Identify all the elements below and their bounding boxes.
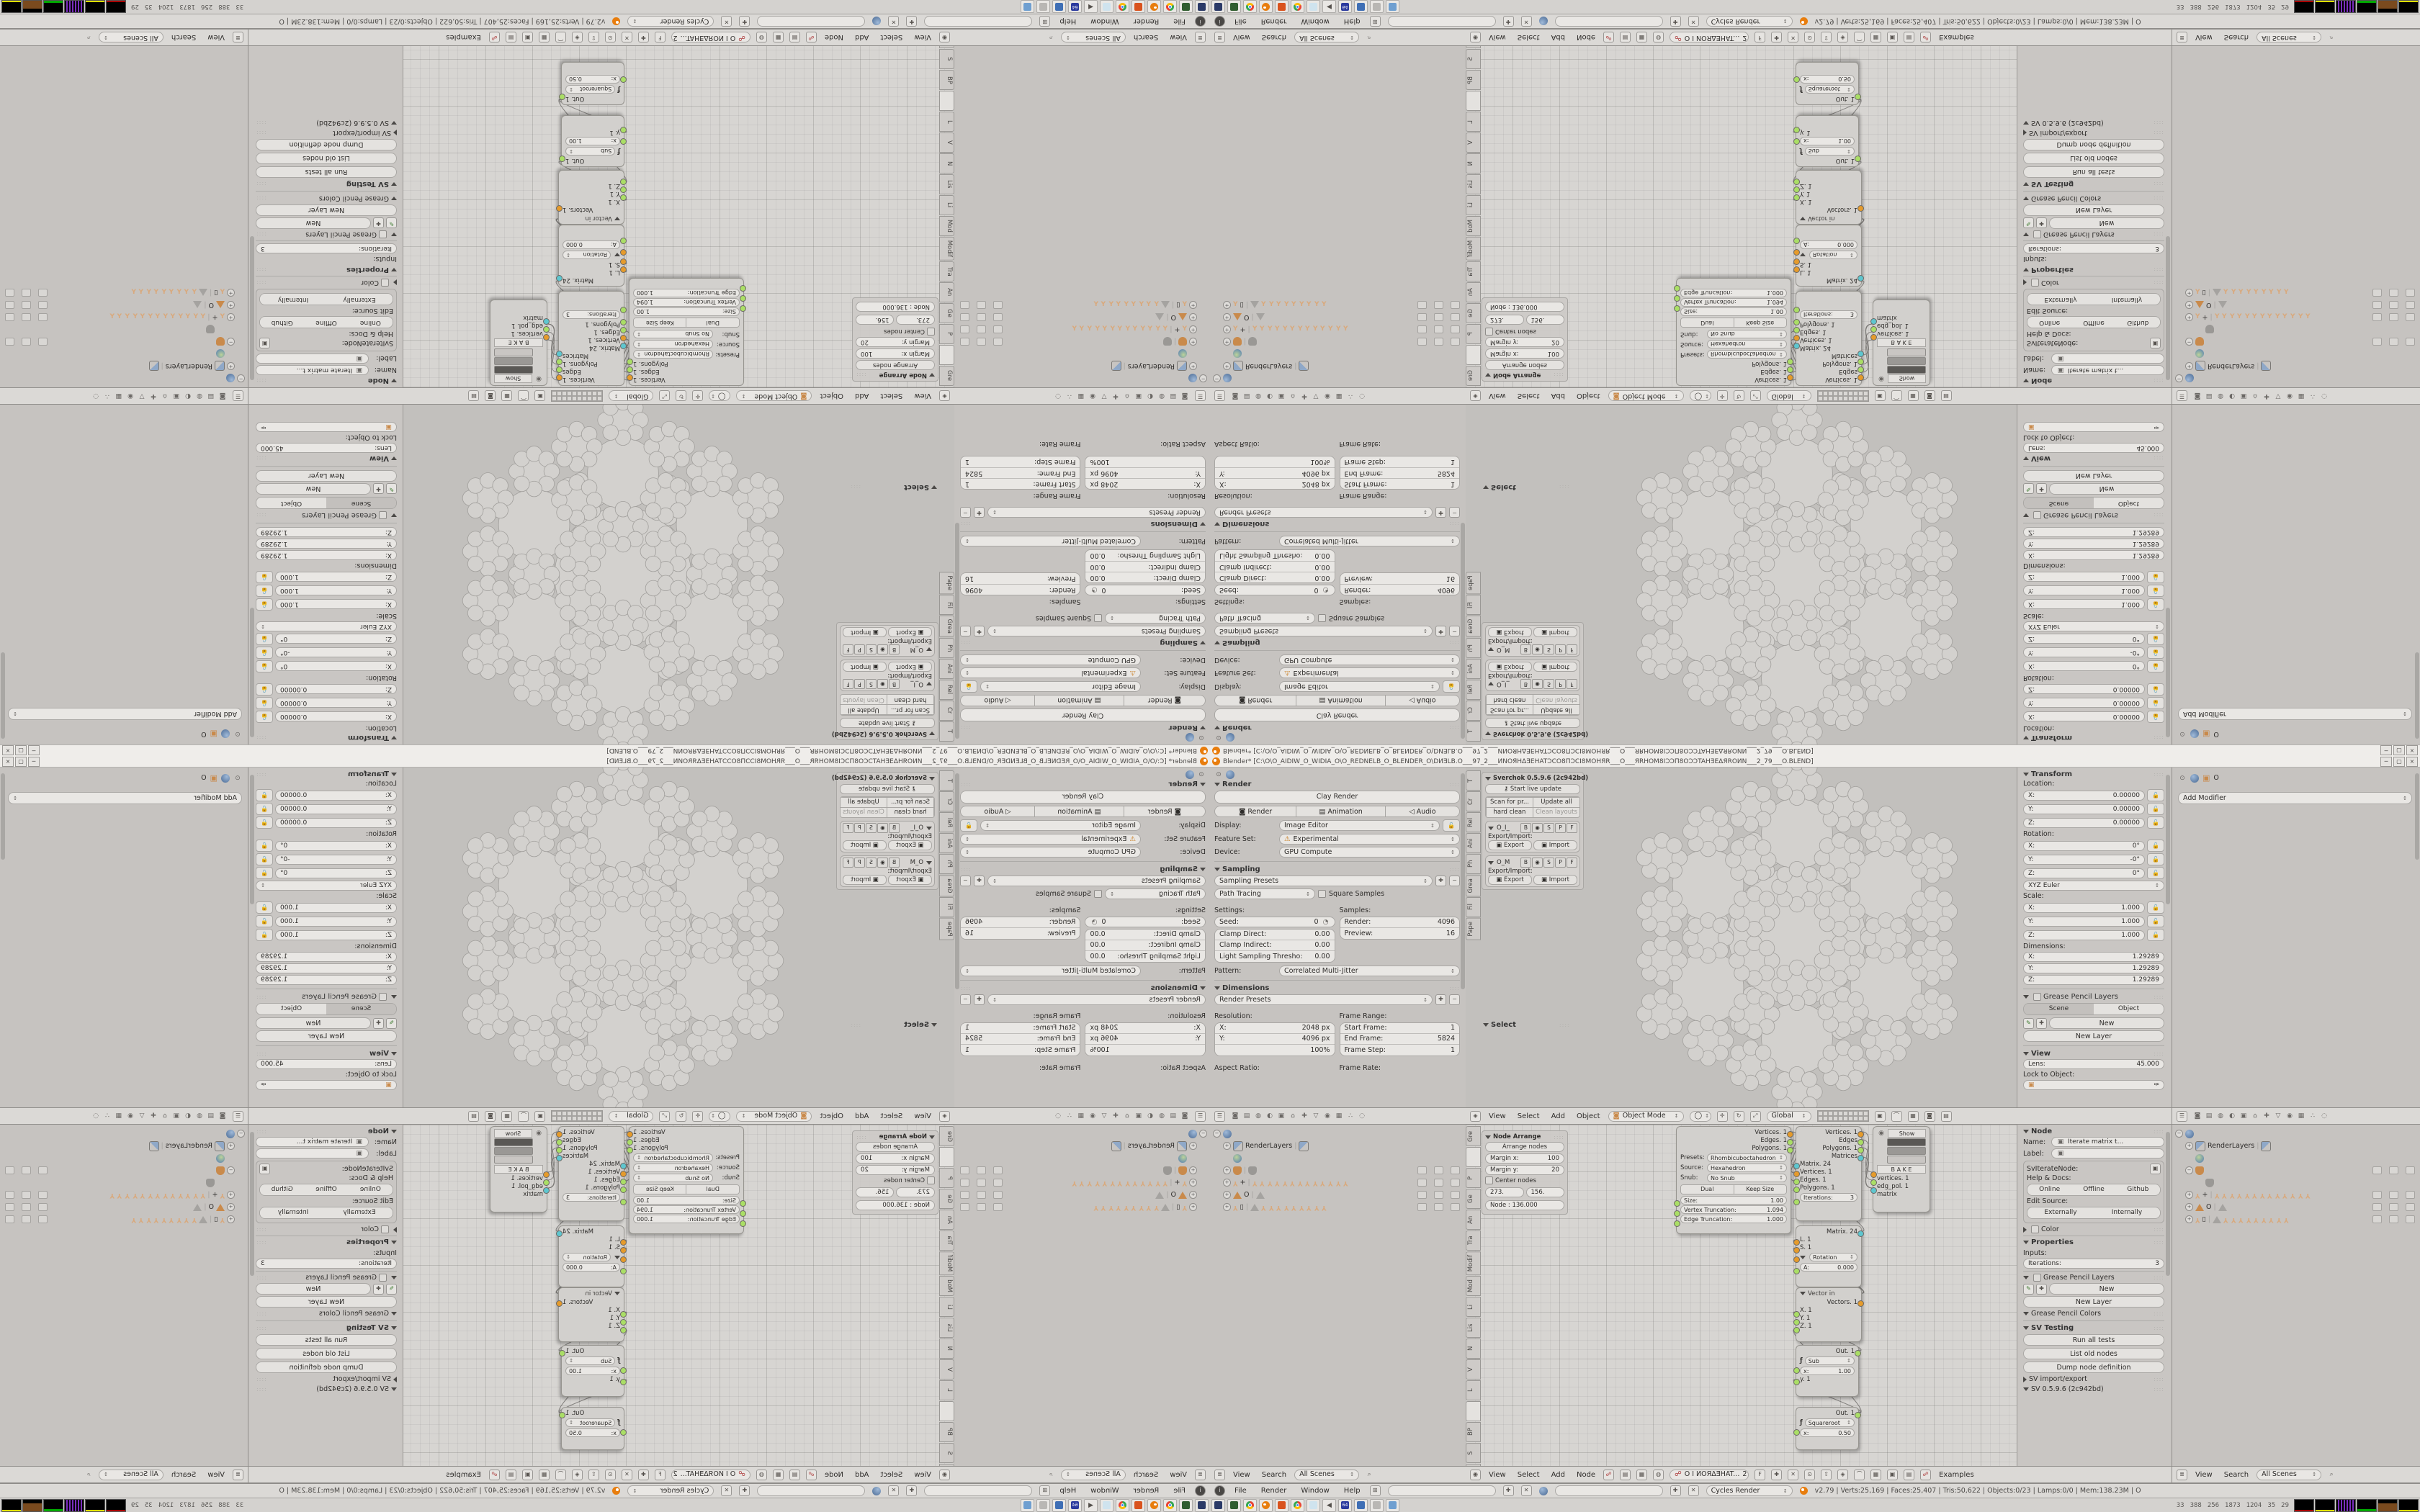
location-z-field[interactable]: Z:0.00000 xyxy=(2023,818,2145,828)
lock-icon[interactable]: 🔓 xyxy=(2147,697,2164,709)
unlink-button[interactable]: ✕ xyxy=(622,32,632,43)
outliner-row-renderlayers[interactable]: +RenderLayers| xyxy=(957,360,1207,372)
render-panel-title[interactable]: Render xyxy=(1169,724,1198,732)
display-dropdown[interactable]: Image Editor↕ xyxy=(980,820,1141,831)
screen-layout-field[interactable] xyxy=(1388,1485,1496,1496)
physics-tab-icon[interactable]: ◌ xyxy=(1358,1112,1366,1120)
clean-layouts-button[interactable]: Clean layouts xyxy=(1533,807,1579,817)
dim-x-field[interactable]: X:1.29289 xyxy=(2023,550,2164,560)
lock-icon[interactable]: 🔓 xyxy=(256,683,273,696)
window-app-icon[interactable] xyxy=(1386,1,1399,14)
properties-header[interactable]: ☰ ◙▤◍◐▣⌂✚▽◉▦∴◌ xyxy=(2172,1107,2420,1125)
node-arrange-title[interactable]: Node Arrange xyxy=(1493,1133,1541,1140)
editor-type-button[interactable]: ≣ xyxy=(1195,32,1206,43)
node-tree-selector[interactable]: ☍O I ИOЯΔƎHAT...2 xyxy=(1670,1470,1749,1480)
size-field[interactable]: Size:1.00 xyxy=(633,1196,740,1205)
list-old-nodes-button[interactable]: List old nodes xyxy=(256,1348,397,1359)
physics-tab-icon[interactable]: ◌ xyxy=(1054,392,1062,400)
layer-grid[interactable] xyxy=(551,390,603,402)
gp-new-button[interactable]: New xyxy=(256,1017,371,1029)
screen-layout-icon[interactable]: ⊞ xyxy=(1370,1485,1381,1496)
clay-render-field[interactable]: Clay Render xyxy=(1214,791,1460,804)
keep-size-button[interactable]: Keep Size xyxy=(1734,1185,1787,1194)
lock-icon[interactable]: 🔓 xyxy=(256,803,273,815)
rotation-dropdown[interactable]: Rotation↕ xyxy=(563,1253,611,1261)
scan-for-props-button[interactable]: Scan for pr... xyxy=(887,797,934,807)
properties-header[interactable]: ☰ ◙▤◍◐▣⌂✚▽◉▦∴◌ xyxy=(0,1107,248,1125)
hard-clean-button[interactable]: hard clean xyxy=(1486,807,1533,817)
frame-step-field[interactable]: Frame Step:1 xyxy=(961,1045,1080,1056)
run-all-tests-button[interactable]: Run all tests xyxy=(2023,166,2164,178)
object-breadcrumb-icon[interactable]: ▣ xyxy=(2202,729,2210,739)
light-sampling-threshold-field[interactable]: Light Sampling Thresho:0.00 xyxy=(1215,550,1335,561)
chrome-icon[interactable] xyxy=(1243,1499,1257,1512)
shading-dropdown[interactable]: ◯↕ xyxy=(1690,391,1711,402)
object-tab-icon[interactable]: ▣ xyxy=(1277,392,1286,400)
internally-button[interactable]: Internally xyxy=(2094,1207,2160,1218)
snap-magnet-icon[interactable]: ⌒ xyxy=(518,1111,529,1122)
snap-magnet-icon[interactable]: ⌒ xyxy=(1891,391,1902,402)
start-live-update-button[interactable]: ⚷ Start live update xyxy=(1485,718,1580,728)
paste-icon[interactable]: ▤ xyxy=(506,32,516,43)
math-op-dropdown[interactable]: Sub↕ xyxy=(1805,147,1855,156)
flag-b[interactable]: B xyxy=(889,823,900,833)
snap-magnet-icon[interactable]: ⌒ xyxy=(555,32,566,43)
examples-menu[interactable]: Examples xyxy=(444,1471,483,1479)
scene-delete-button[interactable]: ✕ xyxy=(1688,16,1699,27)
outliner-row-scene[interactable]: − xyxy=(2175,372,2418,384)
resolution-percentage-field[interactable]: 100% xyxy=(1215,1045,1335,1056)
gp-checkbox[interactable] xyxy=(2033,511,2041,519)
gp-new-button[interactable]: New xyxy=(2049,1283,2164,1295)
add-icon[interactable]: ✚ xyxy=(2036,218,2047,229)
copy-icon[interactable]: ▣ xyxy=(259,338,270,348)
outliner-row-mesh[interactable]: +O| xyxy=(2,299,245,311)
x-field[interactable]: x:0.50 xyxy=(1800,75,1855,84)
integrator-dropdown[interactable]: Path Tracing↕ xyxy=(1214,888,1315,899)
material-tab-icon[interactable]: ◉ xyxy=(1088,392,1097,400)
outliner-row-bones2[interactable]: +Y▯| YYYYYYYYY xyxy=(2,287,245,299)
sverchok-tree-icon[interactable]: ☍ xyxy=(806,32,817,43)
scene-breadcrumb-icon[interactable] xyxy=(2190,774,2199,783)
preview-samples-field[interactable]: Preview:16 xyxy=(1340,573,1460,584)
feature-set-dropdown[interactable]: ⚠Experimental↕ xyxy=(960,834,1141,845)
math-op-dropdown[interactable]: Squareroot↕ xyxy=(1805,85,1855,94)
manipulator-scale-icon[interactable]: ⤢ xyxy=(659,1111,670,1122)
frame-step-field[interactable]: Frame Step:1 xyxy=(1340,1045,1460,1056)
gp-object-tab[interactable]: Object xyxy=(256,498,326,508)
node-editor-header[interactable]: ◉ ViewSelectAddNode ☍ ▤ ▦ ◍ ☍O I ИOЯΔƎHA… xyxy=(1466,29,2172,46)
outliner-row-scene[interactable]: − xyxy=(957,1128,1207,1140)
lock-icon[interactable]: 🔓 xyxy=(256,633,273,645)
viewport-header[interactable]: ◈ ViewSelectAddObject ◙Object Mode↕ ◯↕ ✛… xyxy=(248,387,954,405)
y-value-field[interactable]: 156. xyxy=(1526,315,1565,325)
scene-tab-icon[interactable]: ◍ xyxy=(1254,1112,1263,1120)
render-ogl-icon[interactable]: ◙ xyxy=(485,1111,496,1122)
world-tab-icon[interactable]: ◐ xyxy=(1265,392,1274,400)
scale-z-field[interactable]: Z:1.000 xyxy=(275,572,397,582)
lock-icon[interactable]: ▣ xyxy=(1875,391,1886,402)
outliner-header[interactable]: ≣ ViewSearch All Scenes↕ ⌕ xyxy=(1210,1466,1466,1483)
close-button[interactable]: × xyxy=(2406,746,2418,756)
pattern-dropdown[interactable]: Correlated Multi-Jitter↕ xyxy=(960,966,1141,976)
volume-icon[interactable]: ◀ xyxy=(1322,1499,1336,1512)
material-tab-icon[interactable]: ◉ xyxy=(1323,392,1332,400)
offline-button[interactable]: Offline xyxy=(2071,317,2115,328)
node-generator[interactable]: Vertices. 1 Edges. 1 Polygons. 1 Presets… xyxy=(629,1126,744,1234)
edge-color-swatch[interactable] xyxy=(494,357,533,365)
edge-truncation-field[interactable]: Edge Truncation:1.000 xyxy=(1680,1215,1787,1223)
clay-render-field[interactable]: Clay Render xyxy=(960,708,1206,721)
eye-icon[interactable]: ◉ xyxy=(877,858,888,868)
select-panel[interactable]: Select:::: xyxy=(1483,1021,1570,1029)
end-frame-field[interactable]: End Frame:5824 xyxy=(961,467,1080,478)
display-mode-dropdown[interactable]: All Scenes↕ xyxy=(1294,1470,1359,1480)
scrollbar[interactable] xyxy=(2166,608,2170,737)
texture-tab-icon[interactable]: ▦ xyxy=(1077,392,1085,400)
name-field[interactable]: ▣Iterate matrix t... xyxy=(2051,365,2164,375)
data-tab-icon[interactable]: ▽ xyxy=(2274,1112,2282,1120)
margin-y-field[interactable]: Margin y:20 xyxy=(856,337,935,347)
outliner-row-world[interactable] xyxy=(957,348,1207,360)
search-icon[interactable]: ⌕ xyxy=(84,1470,93,1479)
eye-icon[interactable]: ◉ xyxy=(1532,823,1543,833)
scale-y-field[interactable]: Y:1.000 xyxy=(275,586,397,596)
audio-button[interactable]: ◁ Audio xyxy=(960,695,1034,706)
manipulator-rotate-icon[interactable]: ↻ xyxy=(676,391,686,402)
rotation-x-field[interactable]: X:0° xyxy=(2023,662,2145,672)
select-panel[interactable]: Select:::: xyxy=(850,1021,937,1029)
margin-y-field[interactable]: Margin y:20 xyxy=(856,1165,935,1175)
snap-magnet-icon[interactable]: ⌒ xyxy=(518,391,529,402)
chrome-icon[interactable] xyxy=(1243,1,1257,14)
info-editor[interactable]: i FileRenderWindowHelp ⊞ ✚✕ ✚✕ Cycles Re… xyxy=(0,1483,1210,1498)
image-viewer-icon[interactable] xyxy=(1354,1499,1368,1512)
viewport-header[interactable]: ◈ ViewSelectAddObject ◙Object Mode↕ ◯↕ ✛… xyxy=(1466,1107,2172,1125)
edge-color-swatch[interactable] xyxy=(1887,357,1926,365)
outliner-row-bones[interactable]: +Y+| YYYYYYYYYYYYY xyxy=(957,1176,1207,1189)
render-tab-icon[interactable]: ◙ xyxy=(1231,1112,1240,1120)
node-panel-title[interactable]: Node xyxy=(2031,377,2052,384)
constraints-tab-icon[interactable]: ⌂ xyxy=(2251,1112,2259,1120)
pencil-icon[interactable]: ✎ xyxy=(386,1018,397,1029)
face-color-swatch[interactable] xyxy=(494,1156,533,1164)
editor-type-button[interactable]: ☰ xyxy=(1214,1111,1225,1122)
scrollbar[interactable] xyxy=(955,523,959,739)
scene-delete-button[interactable]: ✕ xyxy=(721,1485,732,1496)
render-tab-icon[interactable]: ◙ xyxy=(1180,1112,1189,1120)
render-tab-icon[interactable]: ◙ xyxy=(2193,1112,2202,1120)
display-settings-icon[interactable] xyxy=(1195,1,1209,14)
snap-mode-dropdown[interactable]: ▦ xyxy=(1870,32,1881,43)
dim-y-field[interactable]: Y:1.29289 xyxy=(256,963,397,973)
iterations-field[interactable]: Iterations:3 xyxy=(2023,1259,2164,1269)
lock-icon[interactable]: 🔓 xyxy=(256,647,273,659)
snap-icon[interactable]: ◈ xyxy=(1837,32,1848,43)
sv-testing-title[interactable]: SV Testing xyxy=(2031,180,2074,188)
search-icon[interactable]: ⌕ xyxy=(84,33,93,42)
scrollbar[interactable] xyxy=(1,773,5,860)
group-name[interactable]: O_I_ xyxy=(900,824,923,832)
github-button[interactable]: Github xyxy=(2116,1184,2160,1195)
texture-tab-icon[interactable]: ▦ xyxy=(1077,1112,1085,1120)
restrict-render-icon[interactable] xyxy=(1451,1166,1460,1174)
editor-type-button[interactable]: ≣ xyxy=(1195,1470,1206,1480)
render-button[interactable]: ◙ Render xyxy=(1124,806,1206,817)
physics-tab-icon[interactable]: ◌ xyxy=(91,1112,100,1120)
panel-collapse-arrow[interactable] xyxy=(1214,783,1220,786)
scene-field[interactable] xyxy=(1555,1485,1663,1496)
texture-icon[interactable]: ▦ xyxy=(773,32,784,43)
scrollbar[interactable] xyxy=(250,1132,254,1276)
sverchok-panel-title[interactable]: Sverchok 0.5.9.6 (2c942bd) xyxy=(1493,730,1588,737)
bake-button[interactable]: B A K E xyxy=(494,338,543,347)
layout-add-button[interactable]: ✚ xyxy=(1503,16,1514,27)
gp-new-button[interactable]: New xyxy=(256,483,371,495)
lock-icon[interactable]: 🔓 xyxy=(2147,585,2164,597)
render-engine-dropdown[interactable]: Cycles Render↕ xyxy=(627,16,714,27)
color-checkbox[interactable] xyxy=(381,1225,389,1233)
export-button[interactable]: ▣ Export xyxy=(1488,840,1532,850)
outliner-row-world[interactable] xyxy=(1213,348,1463,360)
node-vector-in[interactable]: Vector in Vectors. 1 X. 1 Y. 1 Z. 1 xyxy=(558,1287,624,1342)
iterations-field[interactable]: Iterations:3 xyxy=(1800,310,1857,319)
add-modifier-dropdown[interactable]: Add Modifier↕ xyxy=(8,792,242,804)
show-toggle[interactable]: Show xyxy=(494,1129,532,1138)
margin-y-field[interactable]: Margin y:20 xyxy=(1485,1165,1564,1175)
physics-tab-icon[interactable]: ◌ xyxy=(91,392,100,400)
constraints-tab-icon[interactable]: ⌂ xyxy=(1289,392,1297,400)
rotation-order-dropdown[interactable]: XYZ Euler↕ xyxy=(256,621,397,631)
image-viewer-icon[interactable] xyxy=(1354,1,1368,14)
node-editor[interactable]: Vertices. 1 Edges. 1 Polygons. 1 Presets… xyxy=(1466,1125,2172,1483)
search-icon[interactable]: ⌕ xyxy=(2327,1470,2336,1479)
constraints-tab-icon[interactable]: ⌂ xyxy=(2251,392,2259,400)
location-y-field[interactable]: Y:0.00000 xyxy=(2023,698,2145,708)
label-field[interactable]: ▣ xyxy=(2051,1148,2164,1158)
snap-mode-dropdown[interactable]: ▦ xyxy=(539,32,550,43)
sv-import-export-title[interactable]: SV import/export xyxy=(2029,1375,2087,1383)
eye-icon[interactable]: ◉ xyxy=(877,823,888,833)
spiral-app-icon[interactable] xyxy=(1131,1,1145,14)
gp-scene-tab[interactable]: Scene xyxy=(2024,1004,2094,1014)
center-nodes-checkbox[interactable] xyxy=(927,1176,935,1184)
snap-icon[interactable]: ◈ xyxy=(572,1470,583,1480)
snap-magnet-icon[interactable]: ⌒ xyxy=(1891,1111,1902,1122)
preset-add-button[interactable]: ✚ xyxy=(974,507,985,518)
texture-tab-icon[interactable]: ▦ xyxy=(1335,392,1343,400)
snub-dropdown[interactable]: No Snub↕ xyxy=(1707,1174,1787,1182)
restrict-view-icon[interactable] xyxy=(993,338,1003,346)
lock-icon[interactable]: 🔓 xyxy=(2147,647,2164,659)
outliner-row-world[interactable] xyxy=(2,1152,245,1164)
world-tab-icon[interactable]: ◐ xyxy=(2228,1112,2236,1120)
gp-object-tab[interactable]: Object xyxy=(2094,498,2164,508)
device-dropdown[interactable]: GPU Compute↕ xyxy=(1279,654,1460,665)
object-tab-icon[interactable]: ▣ xyxy=(2239,1112,2248,1120)
frame-step-field[interactable]: Frame Step:1 xyxy=(1340,456,1460,467)
physics-tab-icon[interactable]: ◌ xyxy=(2320,392,2329,400)
render-button[interactable]: ◙ Render xyxy=(1214,695,1296,706)
import-button[interactable]: ▣ Import xyxy=(1533,840,1577,850)
sv-testing-title[interactable]: SV Testing xyxy=(2031,1324,2074,1332)
volume-icon[interactable]: ◀ xyxy=(1084,1,1098,14)
render-tab-icon[interactable]: ◙ xyxy=(218,1112,227,1120)
mode-dropdown[interactable]: ◙Object Mode↕ xyxy=(736,391,812,402)
edge-color-swatch[interactable] xyxy=(1887,1147,1926,1155)
editor-type-button[interactable]: ≣ xyxy=(233,32,243,43)
margin-x-field[interactable]: Margin x:100 xyxy=(856,1153,935,1164)
paste-icon[interactable]: ▤ xyxy=(506,1470,516,1480)
scene-tab-icon[interactable]: ◍ xyxy=(1157,392,1166,400)
externally-button[interactable]: Externally xyxy=(2027,1207,2094,1218)
rotation-dropdown[interactable]: Rotation↕ xyxy=(1809,251,1857,259)
snub-dropdown[interactable]: No Snub↕ xyxy=(633,330,713,338)
material-tab-icon[interactable]: ◉ xyxy=(2285,1112,2294,1120)
rotation-x-field[interactable]: X:0° xyxy=(275,662,397,672)
view-panel-title[interactable]: View xyxy=(2031,454,2051,462)
preset-add-button[interactable]: ✚ xyxy=(974,994,985,1005)
manipulator-scale-icon[interactable]: ⤢ xyxy=(1750,391,1761,402)
gp-checkbox[interactable] xyxy=(379,1274,387,1282)
color-panel-title[interactable]: Color xyxy=(361,279,379,287)
run-all-tests-button[interactable]: Run all tests xyxy=(256,166,397,178)
node-tree-selector[interactable]: ☍O I ИOЯΔƎHAT...2 xyxy=(671,32,750,43)
scrollbar[interactable] xyxy=(2166,236,2170,380)
properties-header[interactable]: ☰ ◙▤◍◐▣⌂✚▽◉▦∴◌ xyxy=(0,387,248,405)
node-count-field[interactable]: Node : 136.000 xyxy=(856,1200,935,1210)
scrollbar[interactable] xyxy=(250,775,254,904)
math-op-dropdown[interactable]: Squareroot↕ xyxy=(565,1418,615,1427)
material-tab-icon[interactable]: ◉ xyxy=(1088,1112,1097,1120)
scene-tab-icon[interactable]: ◍ xyxy=(195,392,204,400)
run-all-tests-button[interactable]: Run all tests xyxy=(2023,1334,2164,1346)
x-field[interactable]: x:0.50 xyxy=(1800,1428,1855,1437)
import-button[interactable]: ▣ Import xyxy=(843,662,887,672)
render-layers-tab-icon[interactable]: ▤ xyxy=(207,1112,215,1120)
render-engine-dropdown[interactable]: Cycles Render↕ xyxy=(1706,16,1793,27)
sampling-panel-title[interactable]: Sampling xyxy=(1222,639,1260,647)
start-live-update-button[interactable]: ⚷ Start live update xyxy=(840,718,935,728)
snap-element-dropdown[interactable]: ▦ xyxy=(1908,391,1919,402)
node-editor-header[interactable]: ◉ ViewSelectAddNode ☍ ▤ ▦ ◍ ☍O I ИOЯΔƎHA… xyxy=(248,1466,954,1483)
clean-layouts-button[interactable]: Clean layouts xyxy=(841,807,887,817)
lock-icon[interactable]: ▣ xyxy=(1875,1111,1886,1122)
scene-add-button[interactable]: ✚ xyxy=(739,16,750,27)
scale-x-field[interactable]: X:1.000 xyxy=(275,903,397,913)
object-tab-icon[interactable]: ▣ xyxy=(1134,1112,1143,1120)
particles-tab-icon[interactable]: ∴ xyxy=(2308,392,2317,400)
screen-layout-field[interactable] xyxy=(924,1485,1032,1496)
gp-checkbox[interactable] xyxy=(379,230,387,238)
outliner-row-armature[interactable]: +| xyxy=(1213,1164,1463,1176)
window-app-icon[interactable] xyxy=(1386,1499,1399,1512)
scale-y-field[interactable]: Y:1.000 xyxy=(2023,586,2145,596)
scale-z-field[interactable]: Z:1.000 xyxy=(2023,930,2145,940)
dim-z-field[interactable]: Z:1.29289 xyxy=(2023,975,2164,985)
save-64-icon[interactable]: 64 xyxy=(1068,1,1082,14)
node-editor-header[interactable]: ◉ ViewSelectAddNode ☍ ▤ ▦ ◍ ☍O I ИOЯΔƎHA… xyxy=(248,29,954,46)
world-tab-icon[interactable]: ◐ xyxy=(184,1112,192,1120)
online-button[interactable]: Online xyxy=(2027,1184,2071,1195)
gp-layers-title[interactable]: Grease Pencil Layers xyxy=(2043,511,2118,519)
scene-tab-icon[interactable]: ◍ xyxy=(2216,1112,2225,1120)
restrict-select-icon[interactable] xyxy=(1434,338,1443,346)
flag-b[interactable]: B xyxy=(1520,679,1531,689)
display-dropdown[interactable]: Image Editor↕ xyxy=(1279,820,1440,831)
clay-render-field[interactable]: Clay Render xyxy=(960,791,1206,804)
node-math-sqrt[interactable]: Out. 1 ƒSquareroot↕ x:0.50 xyxy=(561,1407,624,1450)
lock-icon[interactable]: 🔓 xyxy=(960,680,977,693)
light-sampling-threshold-field[interactable]: Light Sampling Thresho:0.00 xyxy=(1086,550,1206,561)
outliner-header[interactable]: ≣ ViewSearch All Scenes↕ ⌕ xyxy=(0,29,248,46)
outliner-header[interactable]: ≣ ViewSearch All Scenes↕ ⌕ xyxy=(2172,29,2420,46)
scrollbar[interactable] xyxy=(250,608,254,737)
lock-icon[interactable]: 🔓 xyxy=(2147,867,2164,879)
render-ogl-anim-icon[interactable]: ▤ xyxy=(468,1111,479,1122)
gp-new-button[interactable]: New xyxy=(256,217,371,229)
sampling-presets-dropdown[interactable]: Sampling Presets↕ xyxy=(1214,626,1433,636)
name-field[interactable]: ▣Iterate matrix t... xyxy=(256,365,369,375)
render-samples-field[interactable]: Render:4096 xyxy=(961,584,1080,595)
dual-button[interactable]: Dual xyxy=(1681,1185,1734,1194)
dual-button[interactable]: Dual xyxy=(687,318,740,327)
scanner-icon[interactable] xyxy=(1179,1499,1193,1512)
scene-field[interactable] xyxy=(757,1485,865,1496)
layout-add-button[interactable]: ✚ xyxy=(906,1485,917,1496)
notepad-icon[interactable] xyxy=(1100,1499,1113,1512)
render-presets-dropdown[interactable]: Render Presets↕ xyxy=(987,994,1206,1005)
save-64-icon[interactable]: 64 xyxy=(1338,1,1352,14)
display-mode-dropdown[interactable]: All Scenes↕ xyxy=(1294,32,1359,43)
snap-magnet-icon[interactable]: ⌒ xyxy=(555,1470,566,1480)
y-value-field[interactable]: 156. xyxy=(856,1187,895,1197)
feature-set-dropdown[interactable]: ⚠Experimental↕ xyxy=(960,667,1141,678)
scrollbar[interactable] xyxy=(1461,773,1465,989)
editor-type-button[interactable]: ◈ xyxy=(1470,1111,1481,1122)
snub-dropdown[interactable]: No Snub↕ xyxy=(633,1174,713,1182)
render-button[interactable]: ◙ Render xyxy=(1124,695,1206,706)
world-tab-icon[interactable]: ◐ xyxy=(2228,392,2236,400)
manipulator-translate-icon[interactable]: ✛ xyxy=(692,1111,703,1122)
info-editor[interactable]: i FileRenderWindowHelp ⊞ ✚✕ ✚✕ Cycles Re… xyxy=(1210,1483,2420,1498)
shading-dropdown[interactable]: ◯↕ xyxy=(709,391,730,402)
outliner-row-world[interactable] xyxy=(1213,1152,1463,1164)
run-all-tests-button[interactable]: Run all tests xyxy=(256,1334,397,1346)
copy-icon[interactable]: ▣ xyxy=(1887,1470,1898,1480)
minimize-button[interactable]: ─ xyxy=(28,757,40,767)
gp-new-layer-button[interactable]: New Layer xyxy=(256,470,397,482)
sv-import-export-title[interactable]: SV import/export xyxy=(333,129,391,137)
display-settings-icon[interactable] xyxy=(1195,1499,1209,1512)
vertex-color-swatch[interactable] xyxy=(1887,366,1926,374)
properties-panel-title[interactable]: Properties xyxy=(346,1238,389,1246)
keep-size-button[interactable]: Keep Size xyxy=(634,318,687,327)
window-titlebar[interactable]: Blender* [C:\O\O_AIDIW_O_WIDIA_O\O_REDNE… xyxy=(1210,744,2420,756)
copy-icon[interactable]: ▣ xyxy=(1887,32,1898,43)
rotation-y-field[interactable]: Y:-0° xyxy=(2023,648,2145,658)
lock-icon[interactable]: 🔓 xyxy=(256,585,273,597)
location-x-field[interactable]: X:0.00000 xyxy=(275,712,397,722)
material-icon[interactable]: ◍ xyxy=(756,1470,767,1480)
lock-icon[interactable]: 🔓 xyxy=(2147,683,2164,696)
notepad-icon[interactable] xyxy=(1100,1,1113,14)
start-live-update-button[interactable]: ⚷ Start live update xyxy=(840,784,935,794)
add-icon[interactable]: ✚ xyxy=(373,1284,384,1295)
properties-panel-title[interactable]: Properties xyxy=(2031,266,2074,274)
export-button[interactable]: ▣ Export xyxy=(1488,662,1532,672)
restrict-select-icon[interactable] xyxy=(977,338,986,346)
